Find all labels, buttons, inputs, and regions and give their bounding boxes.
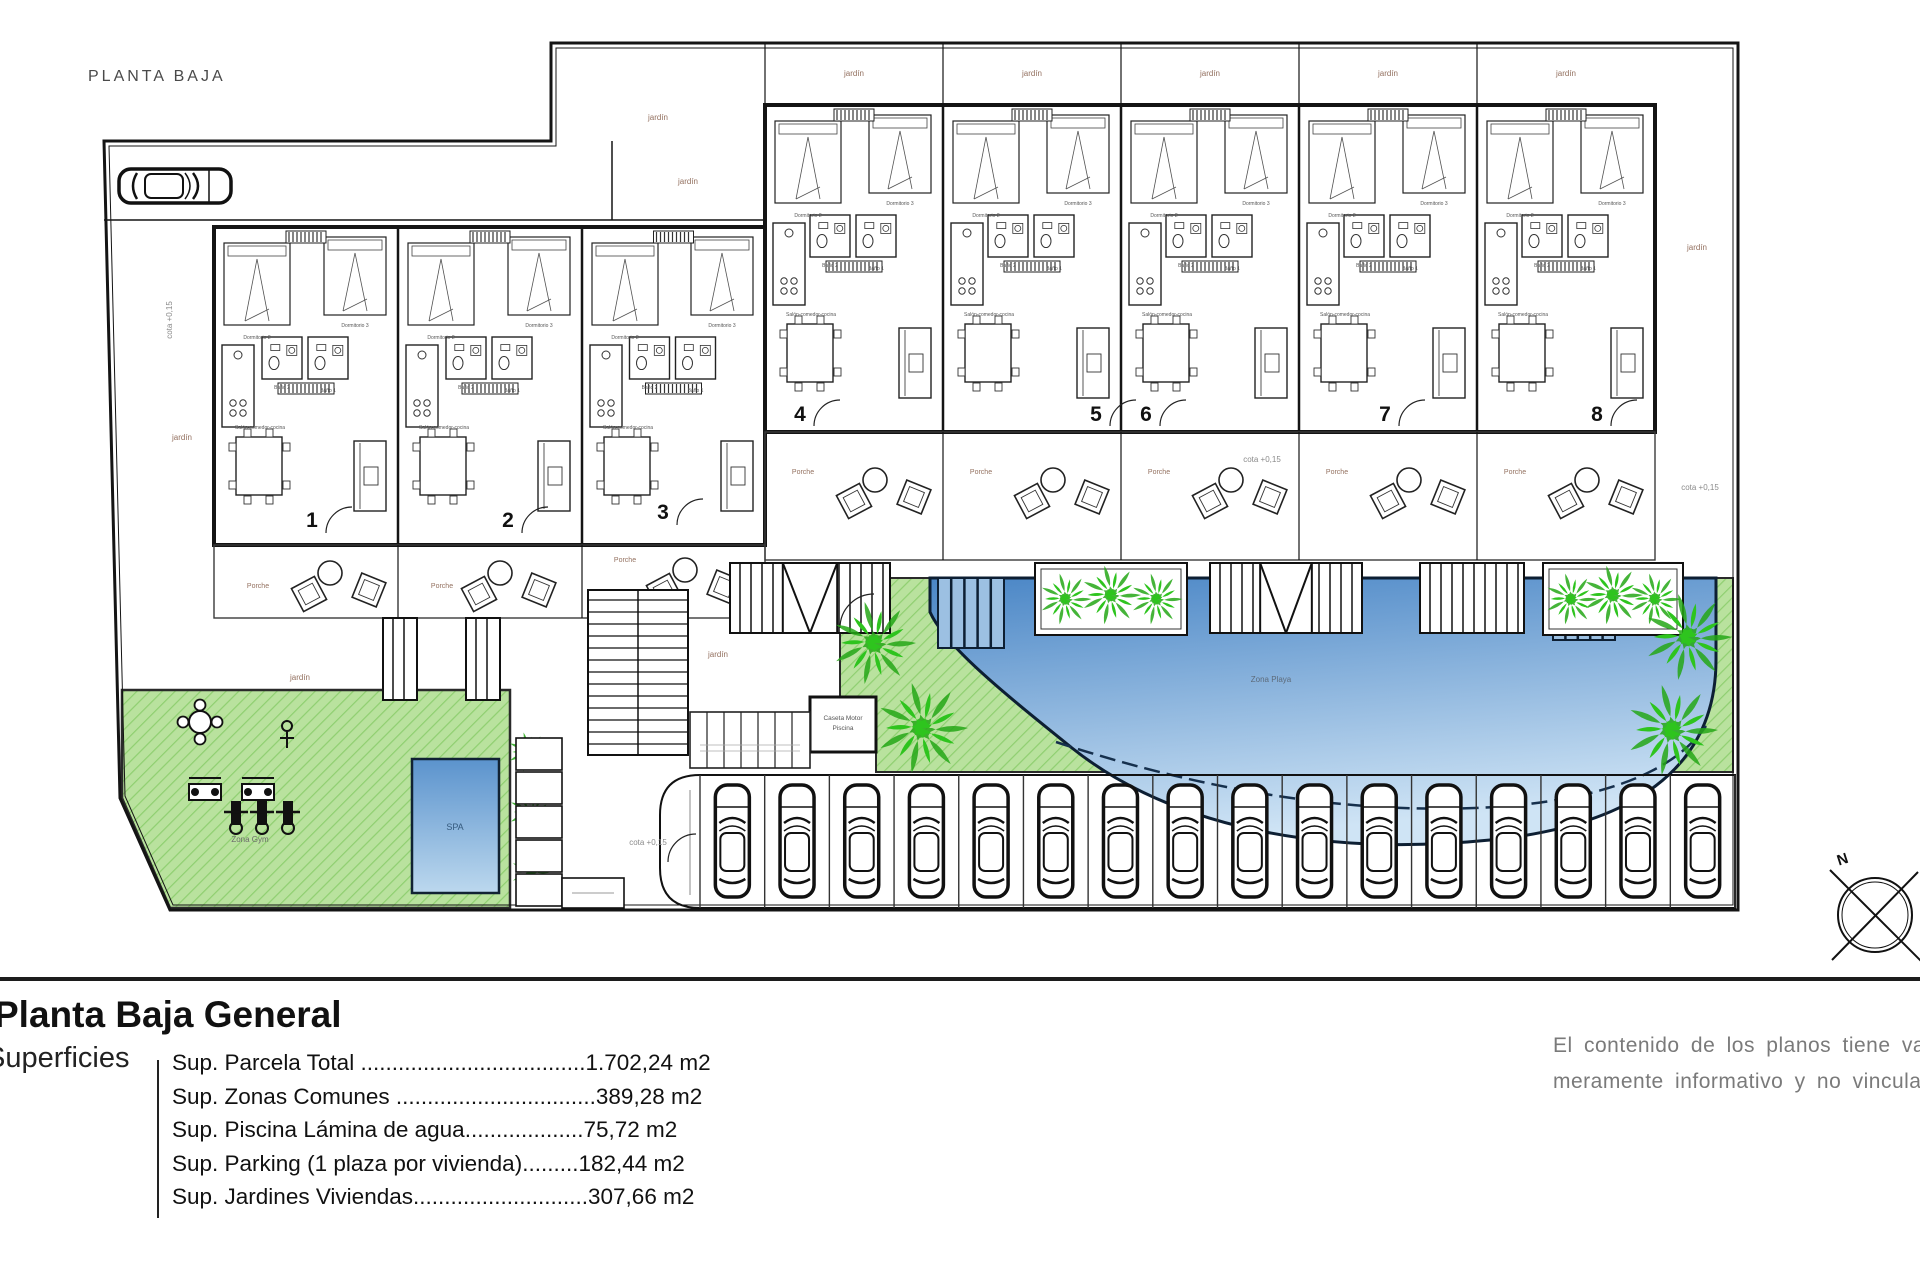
bathroom [1390,215,1430,257]
parking-stall [845,785,879,897]
bed-icon [1581,115,1643,193]
kitchen-counter [951,223,983,305]
bed-icon [869,115,931,193]
bathroom [1212,215,1252,257]
wardrobe [834,109,874,121]
svg-text:Zona Gym: Zona Gym [231,835,269,844]
planter-box [1035,563,1187,635]
svg-text:Caseta Motor: Caseta Motor [823,715,863,722]
svg-text:Salón-comedor-cocina: Salón-comedor-cocina [964,312,1014,318]
sofa [899,328,931,398]
wardrobe [286,231,326,243]
entry-car-bay: jardínjardín [104,113,765,220]
svg-text:Dormitorio 2: Dormitorio 2 [611,335,638,341]
svg-text:Salón-comedor-cocina: Salón-comedor-cocina [419,425,469,431]
stairs [383,618,417,700]
svg-text:5: 5 [1090,403,1102,426]
bathroom [262,337,302,379]
svg-text:Dormitorio 3: Dormitorio 3 [886,201,913,207]
parking-stall [1686,785,1720,897]
svg-text:Dormitorio 3: Dormitorio 3 [1598,201,1625,207]
sofa [1077,328,1109,398]
bathroom [1344,215,1384,257]
bed-icon [953,121,1019,203]
surface-row-parcela: Sup. Parcela Total .....................… [172,1046,711,1080]
porch-furniture [1370,468,1465,519]
big-staircase [588,590,688,755]
car-icon [1362,785,1396,897]
svg-text:Baño 2: Baño 2 [822,263,838,269]
legend-divider [157,1060,159,1218]
bathroom [446,337,486,379]
kitchen-counter [1485,223,1517,305]
svg-text:Dormitorio 3: Dormitorio 3 [341,323,368,329]
bed-icon [775,121,841,203]
svg-text:jardín: jardín [1555,69,1576,78]
svg-text:jardín: jardín [843,69,864,78]
wardrobe [1546,109,1586,121]
bathroom [988,215,1028,257]
svg-text:Baño 1: Baño 1 [868,266,884,272]
svg-text:Dormitorio 3: Dormitorio 3 [525,323,552,329]
car-icon [845,785,879,897]
svg-text:jardín: jardín [677,177,698,186]
svg-text:Piscina: Piscina [833,725,854,732]
svg-text:Baño 2: Baño 2 [274,385,290,391]
parking-stall [1233,785,1267,897]
svg-text:Salón-comedor-cocina: Salón-comedor-cocina [235,425,285,431]
svg-text:cota +0,15: cota +0,15 [1681,483,1719,492]
svg-text:jardín: jardín [171,433,192,442]
kitchen-counter [1307,223,1339,305]
svg-text:jardín: jardín [1686,243,1707,252]
svg-text:Dormitorio 2: Dormitorio 2 [794,213,821,219]
svg-text:Dormitorio 3: Dormitorio 3 [1242,201,1269,207]
sofa [1611,328,1643,398]
dining-table [229,429,290,504]
car-icon [909,785,943,897]
svg-text:Porche: Porche [1326,469,1348,476]
dining-table [780,316,841,391]
parking-row: cota +0,15 [629,775,1735,908]
bed-icon [1487,121,1553,203]
kitchen-counter [590,345,622,427]
page: { "plan": { "title": "PLANTA BAJA", "lab… [0,0,1920,1280]
bathroom [1568,215,1608,257]
svg-text:Porche: Porche [792,469,814,476]
porch-furniture [291,561,386,612]
svg-text:Baño 2: Baño 2 [1178,263,1194,269]
bed-icon [408,243,474,325]
compass-rose: N [1830,850,1920,962]
parking-stall [909,785,943,897]
svg-text:Baño 2: Baño 2 [1000,263,1016,269]
car-icon [715,785,749,897]
bed-icon [1131,121,1197,203]
svg-text:Dormitorio 2: Dormitorio 2 [427,335,454,341]
left-building: Dormitorio 2Dormitorio 3Baño 2Baño 1Saló… [214,227,765,545]
svg-text:8: 8 [1591,403,1603,426]
dining-table [413,429,474,504]
bed-icon [224,243,290,325]
porch-furniture [1192,468,1287,519]
bathroom [810,215,850,257]
stairs [730,563,890,633]
svg-text:6: 6 [1140,403,1152,426]
kitchen-counter [773,223,805,305]
wardrobe [1368,109,1408,121]
svg-text:Salón-comedor-cocina: Salón-comedor-cocina [1320,312,1370,318]
bathroom [492,337,532,379]
legend-section-label: Superficies [0,1042,129,1075]
porch-furniture [1548,468,1643,519]
wardrobe [1190,109,1230,121]
svg-text:Baño 1: Baño 1 [1402,266,1418,272]
car-icon [1427,785,1461,897]
svg-text:cota +0,15: cota +0,15 [165,301,174,339]
porch-furniture [1014,468,1109,519]
svg-text:cota +0,15: cota +0,15 [629,838,667,847]
sheet-divider [0,977,1920,981]
svg-text:Baño 2: Baño 2 [458,385,474,391]
parking-stall [1492,785,1526,897]
svg-text:Porche: Porche [1148,469,1170,476]
svg-text:jardín: jardín [1377,69,1398,78]
svg-text:Porche: Porche [970,469,992,476]
bed-icon [1047,115,1109,193]
svg-text:Salón-comedor-cocina: Salón-comedor-cocina [786,312,836,318]
svg-text:Dormitorio 2: Dormitorio 2 [1328,213,1355,219]
svg-text:jardín: jardín [289,673,310,682]
bed-icon [691,237,753,315]
planter-column [516,738,624,908]
sofa [354,441,386,511]
legend-title: Planta Baja General [0,994,342,1036]
kitchen-counter [1129,223,1161,305]
svg-text:Baño 1: Baño 1 [1046,266,1062,272]
car-icon [1298,785,1332,897]
disclaimer-line-1: El contenido de los planos tiene valo [1553,1028,1920,1064]
bike-parking [690,712,810,768]
pool-steps [938,578,1004,648]
svg-text:Dormitorio 3: Dormitorio 3 [708,323,735,329]
svg-text:Dormitorio 2: Dormitorio 2 [972,213,999,219]
svg-text:Porche: Porche [431,583,453,590]
sofa [721,441,753,511]
car-icon [1686,785,1720,897]
surface-row-parking: Sup. Parking (1 plaza por vivienda).....… [172,1147,711,1181]
dining-table [958,316,1019,391]
stairs [1420,563,1524,633]
surface-row-piscina: Sup. Piscina Lámina de agua.............… [172,1113,711,1147]
svg-text:jardín: jardín [1021,69,1042,78]
car-icon [780,785,814,897]
car-icon [1556,785,1590,897]
svg-text:4: 4 [794,403,806,426]
svg-text:3: 3 [657,501,669,524]
bathroom [856,215,896,257]
parking-stall [1039,785,1073,897]
bathroom [1034,215,1074,257]
svg-text:Baño 1: Baño 1 [1580,266,1596,272]
svg-text:Baño 2: Baño 2 [1356,263,1372,269]
bed-icon [1225,115,1287,193]
car-icon [974,785,1008,897]
wardrobe [1012,109,1052,121]
stairs [1210,563,1362,633]
bathroom [1522,215,1562,257]
svg-text:cota +0,15: cota +0,15 [1243,455,1281,464]
svg-text:Baño 2: Baño 2 [642,385,658,391]
svg-text:Baño 1: Baño 1 [688,388,704,394]
bed-icon [1309,121,1375,203]
svg-text:SPA: SPA [446,822,463,832]
sofa [1255,328,1287,398]
disclaimer-line-2: meramente informativo y no vinculan [1553,1064,1920,1100]
car-icon [1039,785,1073,897]
svg-text:Baño 1: Baño 1 [320,388,336,394]
dining-table [1492,316,1553,391]
svg-text:jardín: jardín [707,650,728,659]
car-icon [119,169,231,203]
surface-table: Sup. Parcela Total .....................… [172,1046,711,1214]
site-plan-sheet: PiscinaZona PlayajardínjardínDormitorio … [0,0,1920,1280]
parking-stall [1621,785,1655,897]
porch-furniture [461,561,556,612]
wardrobe [470,231,510,243]
svg-text:jardín: jardín [647,113,668,122]
sofa [538,441,570,511]
bed-icon [324,237,386,315]
parking-stall [780,785,814,897]
car-icon [1168,785,1202,897]
parking-stall [1298,785,1332,897]
svg-text:Dormitorio 2: Dormitorio 2 [1150,213,1177,219]
svg-text:Dormitorio 2: Dormitorio 2 [243,335,270,341]
svg-text:Salón-comedor-cocina: Salón-comedor-cocina [1498,312,1548,318]
svg-text:jardín: jardín [1199,69,1220,78]
bed-icon [1403,115,1465,193]
car-icon [1621,785,1655,897]
bathroom [308,337,348,379]
surface-row-jardines: Sup. Jardines Viviendas.................… [172,1180,711,1214]
svg-text:N: N [1835,850,1851,870]
dining-table [1136,316,1197,391]
parking-stall [715,785,749,897]
plan-title: PLANTA BAJA [88,68,226,86]
dining-table [597,429,658,504]
wardrobe [654,231,694,243]
svg-text:2: 2 [502,509,514,532]
parking-stall [1168,785,1202,897]
svg-text:Baño 2: Baño 2 [1534,263,1550,269]
svg-text:Porche: Porche [614,557,636,564]
svg-text:Porche: Porche [247,583,269,590]
kitchen-counter [222,345,254,427]
svg-text:Salón-comedor-cocina: Salón-comedor-cocina [1142,312,1192,318]
bathroom [1166,215,1206,257]
right-building: Dormitorio 2Dormitorio 3Baño 2Baño 1Saló… [765,105,1655,432]
parking-stall [1427,785,1461,897]
right-porches: PorchePorchePorchePorchePorchecota +0,15 [765,432,1655,574]
svg-text:Dormitorio 2: Dormitorio 2 [1506,213,1533,219]
bed-icon [508,237,570,315]
parking-stall [1556,785,1590,897]
parking-stall [1362,785,1396,897]
bathroom [630,337,670,379]
svg-text:1: 1 [306,509,318,532]
pool-equipment-shed: Caseta MotorPiscina [810,697,876,752]
svg-text:Dormitorio 3: Dormitorio 3 [1420,201,1447,207]
porch-furniture [836,468,931,519]
disclaimer-text: El contenido de los planos tiene valo me… [1553,1028,1920,1100]
surface-row-zonas-comunes: Sup. Zonas Comunes .....................… [172,1080,711,1114]
parking-stall [974,785,1008,897]
car-icon [1233,785,1267,897]
svg-text:Dormitorio 3: Dormitorio 3 [1064,201,1091,207]
car-icon [1103,785,1137,897]
svg-text:Salón-comedor-cocina: Salón-comedor-cocina [603,425,653,431]
stairs [466,618,500,700]
svg-text:Porche: Porche [1504,469,1526,476]
svg-text:Zona Playa: Zona Playa [1251,675,1292,684]
svg-text:Baño 1: Baño 1 [504,388,520,394]
car-icon [1492,785,1526,897]
kitchen-counter [406,345,438,427]
svg-text:Baño 1: Baño 1 [1224,266,1240,272]
sofa [1433,328,1465,398]
svg-text:7: 7 [1379,403,1391,426]
bathroom [676,337,716,379]
dining-table [1314,316,1375,391]
bed-icon [592,243,658,325]
parking-stall [1103,785,1137,897]
